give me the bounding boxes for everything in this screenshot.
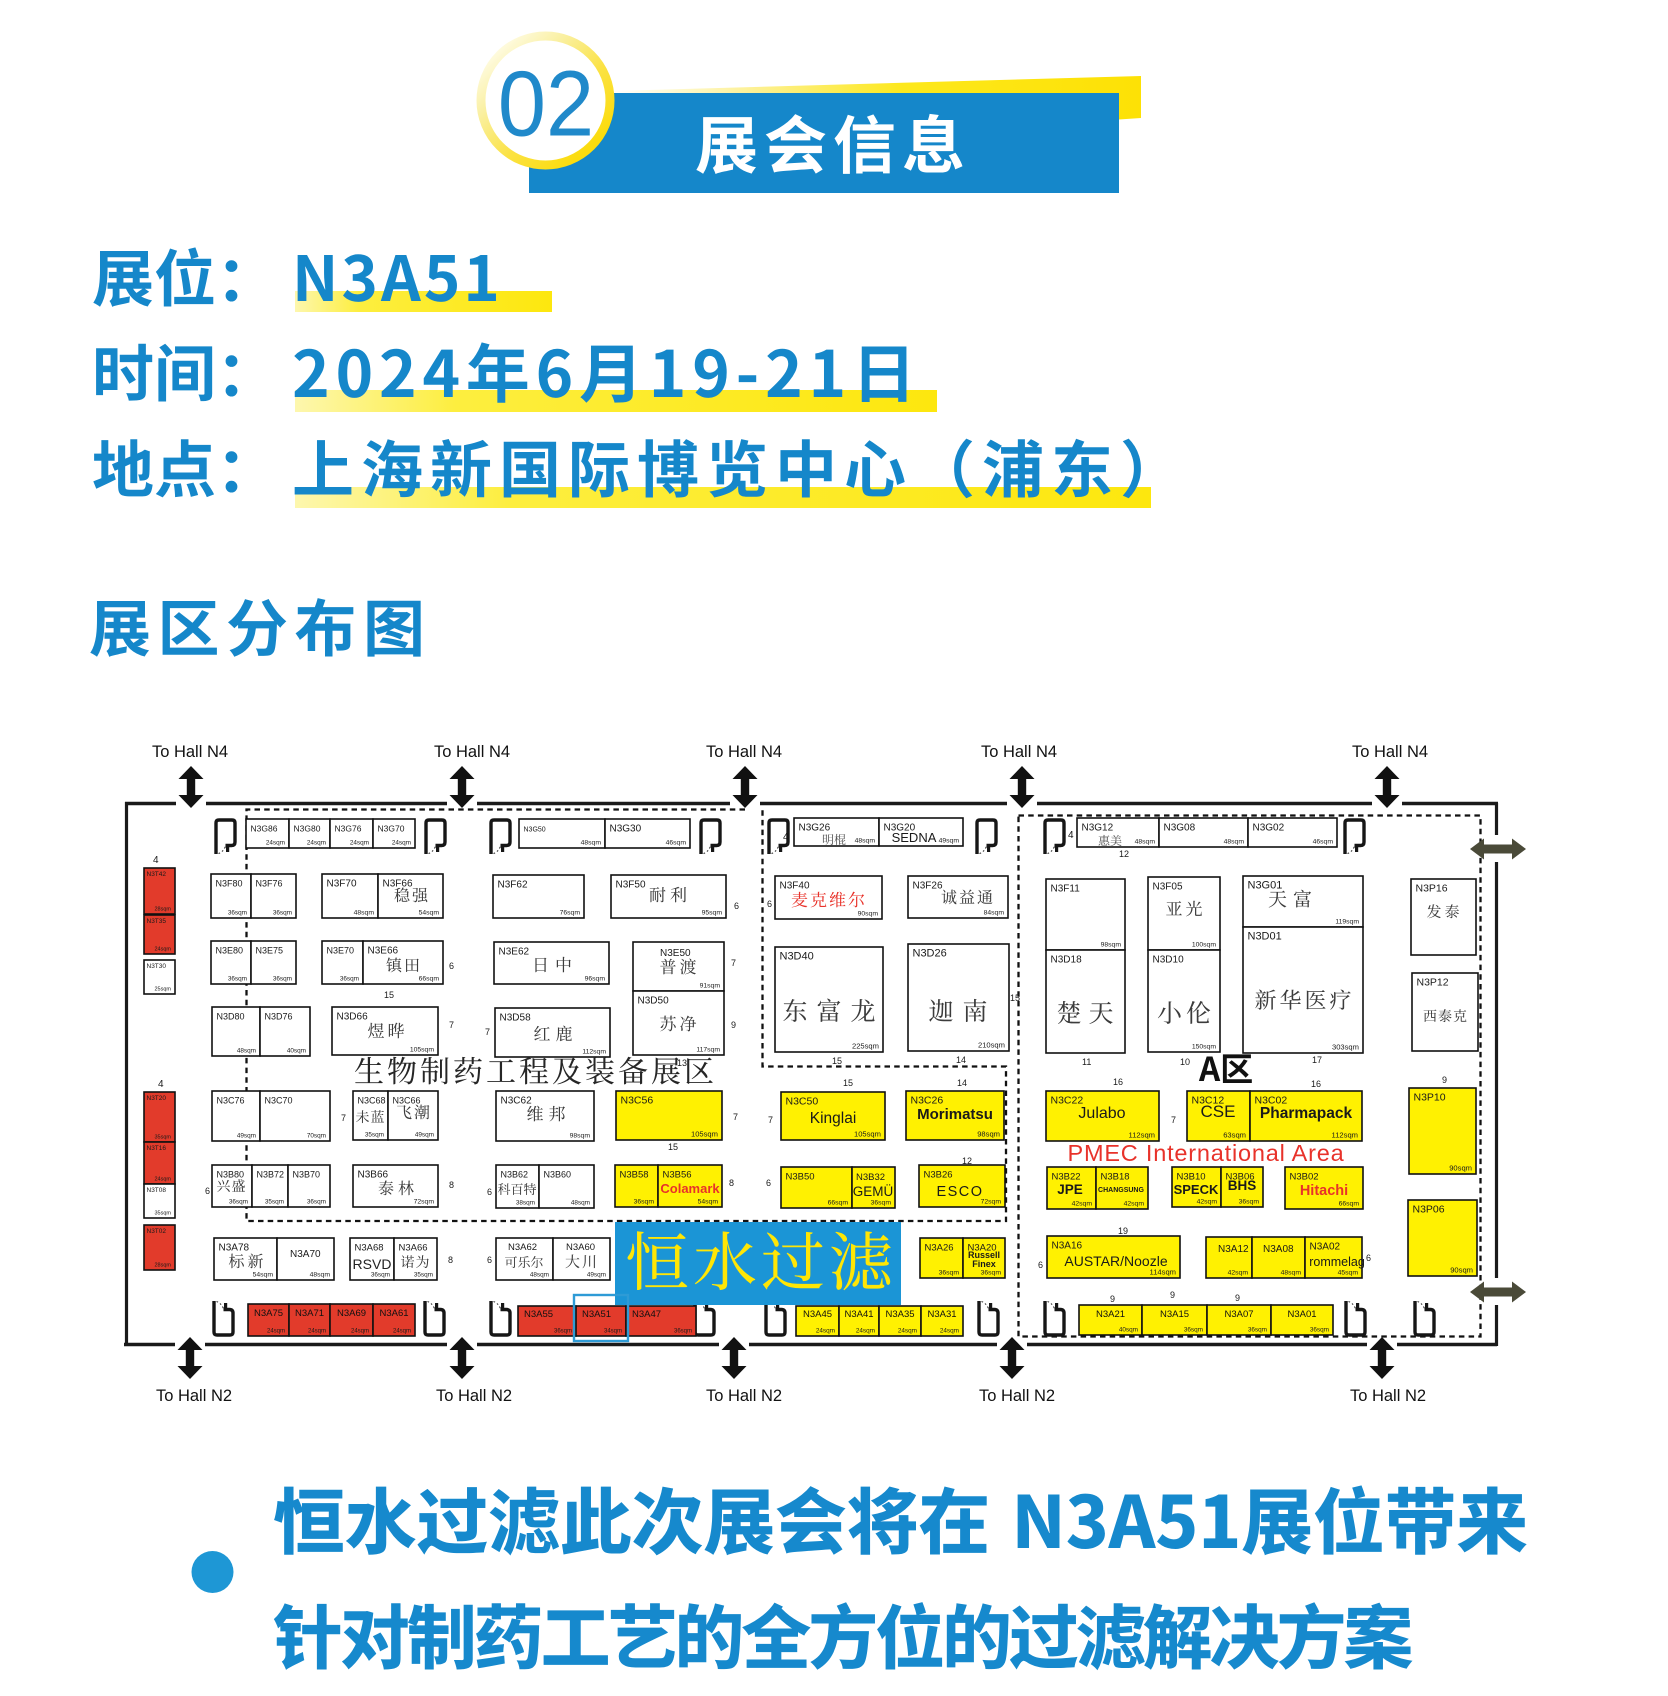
svg-text:112sqm: 112sqm [1129, 1131, 1155, 1140]
svg-text:N3E50: N3E50 [660, 948, 691, 959]
svg-text:N3B62: N3B62 [501, 1170, 529, 1180]
svg-text:N3D18: N3D18 [1051, 955, 1083, 966]
svg-text:48sqm: 48sqm [855, 838, 876, 845]
svg-text:40sqm: 40sqm [1119, 1327, 1138, 1334]
svg-text:To Hall N2: To Hall N2 [436, 1387, 512, 1405]
svg-text:N3A68: N3A68 [355, 1243, 384, 1254]
svg-text:95sqm: 95sqm [702, 910, 723, 917]
svg-text:48sqm: 48sqm [310, 1272, 331, 1279]
svg-text:N3G50: N3G50 [524, 827, 546, 834]
svg-text:To Hall N2: To Hall N2 [1350, 1387, 1426, 1405]
svg-text:N3G08: N3G08 [1164, 823, 1196, 834]
svg-text:24sqm: 24sqm [393, 1329, 411, 1335]
svg-text:N3A21: N3A21 [1096, 1309, 1125, 1320]
svg-text:N3B10: N3B10 [1177, 1172, 1206, 1183]
svg-text:36sqm: 36sqm [340, 976, 359, 983]
svg-text:105sqm: 105sqm [854, 1130, 881, 1139]
svg-text:PMEC International Area: PMEC International Area [1067, 1140, 1344, 1166]
svg-text:9: 9 [1170, 1290, 1175, 1300]
svg-text:N3B80: N3B80 [217, 1170, 245, 1180]
svg-text:N3C26: N3C26 [911, 1095, 944, 1107]
svg-text:54sqm: 54sqm [419, 910, 440, 917]
svg-text:6: 6 [449, 961, 454, 971]
svg-text:N3B22: N3B22 [1052, 1172, 1081, 1183]
svg-text:72sqm: 72sqm [981, 1199, 1002, 1206]
svg-text:N3B58: N3B58 [620, 1170, 649, 1181]
svg-text:63sqm: 63sqm [1223, 1131, 1246, 1140]
svg-text:15: 15 [1010, 993, 1020, 1003]
svg-text:N3G02: N3G02 [1253, 823, 1285, 834]
svg-text:BHS: BHS [1228, 1178, 1257, 1193]
svg-text:46sqm: 46sqm [666, 840, 687, 847]
svg-text:24sqm: 24sqm [856, 1328, 875, 1335]
svg-text:N3A02: N3A02 [1310, 1242, 1341, 1253]
svg-text:Julabo: Julabo [1078, 1105, 1125, 1122]
svg-text:7: 7 [768, 1115, 773, 1125]
svg-text:N3B02: N3B02 [1290, 1172, 1319, 1183]
svg-text:N3A78: N3A78 [219, 1243, 250, 1254]
svg-text:N3C66: N3C66 [393, 1096, 421, 1106]
svg-text:112sqm: 112sqm [582, 1049, 606, 1056]
svg-text:N3T20: N3T20 [147, 1095, 167, 1102]
svg-text:24sqm: 24sqm [154, 947, 171, 953]
svg-text:SEDNA: SEDNA [892, 830, 937, 845]
svg-text:N3D50: N3D50 [638, 996, 670, 1007]
svg-text:35sqm: 35sqm [154, 1135, 171, 1141]
svg-text:N3B32: N3B32 [856, 1172, 885, 1183]
svg-text:N3T30: N3T30 [147, 963, 167, 970]
svg-text:8: 8 [729, 1178, 734, 1188]
svg-text:38sqm: 38sqm [516, 1200, 535, 1207]
svg-text:35sqm: 35sqm [365, 1132, 384, 1139]
svg-text:36sqm: 36sqm [228, 910, 247, 917]
svg-text:CSE: CSE [1201, 1102, 1236, 1121]
svg-text:N3D26: N3D26 [913, 948, 947, 960]
svg-text:N3T35: N3T35 [147, 918, 167, 925]
svg-text:24sqm: 24sqm [307, 840, 326, 847]
svg-text:N3G76: N3G76 [335, 824, 362, 834]
svg-text:70sqm: 70sqm [307, 1133, 326, 1140]
svg-text:48sqm: 48sqm [1281, 1270, 1302, 1277]
svg-text:02: 02 [498, 53, 594, 157]
svg-text:rommelag: rommelag [1309, 1255, 1365, 1269]
svg-text:N3E75: N3E75 [256, 946, 284, 956]
svg-text:AUSTAR/Noozle: AUSTAR/Noozle [1064, 1253, 1167, 1269]
svg-text:35sqm: 35sqm [154, 1211, 171, 1217]
svg-text:N3D58: N3D58 [500, 1013, 532, 1024]
svg-text:36sqm: 36sqm [674, 1329, 692, 1335]
svg-text:N3A47: N3A47 [632, 1309, 661, 1320]
svg-text:16: 16 [1113, 1077, 1123, 1087]
svg-text:96sqm: 96sqm [585, 976, 606, 983]
svg-text:6: 6 [487, 1255, 492, 1265]
svg-text:14: 14 [956, 1055, 966, 1065]
svg-text:90sqm: 90sqm [858, 911, 879, 918]
svg-text:225sqm: 225sqm [852, 1042, 879, 1051]
svg-text:N3D66: N3D66 [337, 1012, 369, 1023]
svg-text:N3P12: N3P12 [1417, 977, 1449, 989]
svg-text:49sqm: 49sqm [587, 1272, 606, 1279]
svg-text:N3B72: N3B72 [257, 1170, 285, 1180]
svg-text:36sqm: 36sqm [1239, 1199, 1260, 1206]
svg-text:24sqm: 24sqm [816, 1328, 835, 1335]
svg-text:To Hall N2: To Hall N2 [979, 1387, 1055, 1405]
svg-text:6: 6 [1038, 1260, 1043, 1270]
svg-text:48sqm: 48sqm [237, 1048, 256, 1055]
svg-text:N3B60: N3B60 [544, 1170, 572, 1180]
svg-text:24sqm: 24sqm [308, 1329, 326, 1335]
svg-text:36sqm: 36sqm [981, 1270, 1002, 1277]
svg-text:Morimatsu: Morimatsu [917, 1106, 993, 1123]
svg-text:4: 4 [153, 855, 159, 866]
svg-text:48sqm: 48sqm [1224, 839, 1245, 846]
svg-text:N3C68: N3C68 [358, 1096, 386, 1106]
svg-text:90sqm: 90sqm [1450, 1266, 1473, 1275]
svg-text:90sqm: 90sqm [1449, 1164, 1472, 1173]
svg-text:35sqm: 35sqm [265, 1199, 284, 1206]
svg-text:N3A62: N3A62 [508, 1242, 537, 1253]
svg-text:7: 7 [731, 958, 736, 968]
svg-text:6: 6 [766, 1178, 771, 1188]
svg-text:48sqm: 48sqm [1135, 839, 1156, 846]
svg-text:Hitachi: Hitachi [1300, 1183, 1348, 1199]
svg-text:15: 15 [843, 1078, 853, 1088]
svg-text:To Hall N4: To Hall N4 [434, 743, 510, 761]
svg-text:N3A69: N3A69 [337, 1308, 366, 1319]
svg-text:48sqm: 48sqm [530, 1272, 549, 1279]
svg-text:N3A16: N3A16 [1052, 1241, 1083, 1252]
svg-text:N3A71: N3A71 [295, 1308, 324, 1319]
svg-text:N3A31: N3A31 [927, 1309, 956, 1320]
svg-text:N3F76: N3F76 [256, 879, 283, 889]
svg-text:N3D76: N3D76 [265, 1012, 293, 1022]
svg-text:49sqm: 49sqm [237, 1133, 256, 1140]
svg-text:N3B70: N3B70 [293, 1170, 321, 1180]
svg-text:72sqm: 72sqm [414, 1199, 435, 1206]
svg-text:Finex: Finex [972, 1259, 996, 1269]
svg-text:19: 19 [1118, 1226, 1128, 1236]
svg-text:N3A45: N3A45 [803, 1309, 832, 1320]
svg-text:N3A35: N3A35 [885, 1309, 914, 1320]
svg-text:46sqm: 46sqm [1313, 839, 1334, 846]
svg-text:N3P10: N3P10 [1414, 1092, 1446, 1104]
svg-text:100sqm: 100sqm [1192, 942, 1217, 949]
svg-text:36sqm: 36sqm [1184, 1327, 1203, 1334]
svg-text:84sqm: 84sqm [984, 910, 1005, 917]
svg-text:17: 17 [1312, 1055, 1322, 1065]
svg-text:6: 6 [1366, 1253, 1371, 1263]
svg-text:12: 12 [1119, 849, 1129, 859]
svg-text:24sqm: 24sqm [940, 1328, 959, 1335]
svg-text:24sqm: 24sqm [351, 1329, 369, 1335]
svg-text:9: 9 [1235, 1293, 1240, 1303]
svg-text:N3G80: N3G80 [294, 824, 321, 834]
svg-text:N3B66: N3B66 [358, 1170, 389, 1181]
svg-text:34sqm: 34sqm [604, 1329, 622, 1335]
svg-text:N3F66: N3F66 [383, 879, 413, 890]
svg-text:36sqm: 36sqm [307, 1199, 326, 1206]
svg-text:25sqm: 25sqm [154, 987, 171, 993]
svg-text:N3A08: N3A08 [1263, 1244, 1294, 1255]
svg-text:N3E62: N3E62 [499, 947, 530, 958]
svg-text:14: 14 [957, 1078, 967, 1088]
svg-text:N3G12: N3G12 [1082, 823, 1114, 834]
svg-text:To Hall N4: To Hall N4 [706, 743, 782, 761]
svg-text:303sqm: 303sqm [1332, 1043, 1359, 1052]
svg-text:15: 15 [384, 990, 394, 1000]
svg-text:54sqm: 54sqm [698, 1199, 719, 1206]
svg-text:7: 7 [485, 1027, 490, 1037]
svg-text:36sqm: 36sqm [939, 1270, 960, 1277]
svg-text:ESCO: ESCO [936, 1184, 983, 1200]
svg-text:7: 7 [449, 1020, 454, 1030]
svg-text:35sqm: 35sqm [414, 1272, 433, 1279]
svg-text:N3F62: N3F62 [498, 880, 528, 891]
svg-text:To Hall N4: To Hall N4 [981, 743, 1057, 761]
svg-text:N3A12: N3A12 [1218, 1244, 1249, 1255]
svg-text:15: 15 [668, 1142, 678, 1152]
svg-text:66sqm: 66sqm [1339, 1201, 1360, 1208]
svg-text:24sqm: 24sqm [154, 1177, 171, 1183]
svg-text:112sqm: 112sqm [1332, 1131, 1358, 1140]
svg-text:117sqm: 117sqm [696, 1047, 720, 1054]
svg-text:6: 6 [734, 901, 739, 911]
svg-text:N3F40: N3F40 [780, 881, 810, 892]
svg-text:45sqm: 45sqm [1338, 1270, 1359, 1277]
svg-text:4: 4 [158, 1079, 164, 1090]
svg-text:36sqm: 36sqm [554, 1329, 572, 1335]
svg-text:N3F50: N3F50 [616, 880, 646, 891]
svg-text:N3P06: N3P06 [1413, 1204, 1445, 1216]
svg-text:N3C56: N3C56 [621, 1095, 654, 1107]
svg-text:36sqm: 36sqm [871, 1200, 892, 1207]
svg-text:105sqm: 105sqm [691, 1130, 718, 1139]
svg-text:49sqm: 49sqm [415, 1132, 434, 1139]
svg-text:N3D01: N3D01 [1248, 931, 1282, 943]
svg-text:N3G30: N3G30 [610, 824, 642, 835]
svg-text:N3A55: N3A55 [524, 1309, 553, 1320]
svg-text:98sqm: 98sqm [1101, 942, 1122, 949]
svg-text:24sqm: 24sqm [392, 840, 411, 847]
svg-text:6: 6 [205, 1186, 210, 1196]
svg-text:N3A15: N3A15 [1160, 1309, 1189, 1320]
svg-text:8: 8 [449, 1180, 454, 1190]
svg-text:N3F05: N3F05 [1153, 882, 1183, 893]
svg-text:GEMÜ: GEMÜ [853, 1184, 894, 1199]
svg-text:8: 8 [448, 1255, 453, 1265]
svg-text:N3C70: N3C70 [265, 1096, 293, 1106]
svg-text:N3E66: N3E66 [368, 946, 399, 957]
svg-text:N3F11: N3F11 [1051, 884, 1081, 895]
svg-text:To Hall N4: To Hall N4 [1352, 743, 1428, 761]
svg-text:9: 9 [1442, 1075, 1447, 1085]
svg-text:42sqm: 42sqm [1197, 1199, 1218, 1206]
svg-text:Kinglai: Kinglai [810, 1110, 857, 1127]
svg-text:To Hall N2: To Hall N2 [156, 1387, 232, 1405]
svg-text:42sqm: 42sqm [1072, 1201, 1093, 1208]
svg-text:N3A61: N3A61 [379, 1308, 408, 1319]
svg-text:36sqm: 36sqm [273, 976, 292, 983]
svg-text:36sqm: 36sqm [1248, 1327, 1267, 1334]
svg-text:N3G26: N3G26 [799, 823, 831, 834]
svg-text:4: 4 [1068, 830, 1074, 841]
svg-text:36sqm: 36sqm [229, 1199, 248, 1206]
svg-text:36sqm: 36sqm [1310, 1327, 1329, 1334]
svg-text:N3T42: N3T42 [147, 871, 167, 878]
svg-text:Pharmapack: Pharmapack [1260, 1105, 1353, 1122]
svg-text:6: 6 [767, 899, 772, 909]
svg-text:7: 7 [1171, 1115, 1176, 1125]
svg-text:24sqm: 24sqm [898, 1328, 917, 1335]
svg-text:48sqm: 48sqm [581, 840, 602, 847]
svg-text:N3A70: N3A70 [290, 1249, 321, 1260]
svg-text:36sqm: 36sqm [634, 1199, 655, 1206]
svg-text:N3A01: N3A01 [1287, 1309, 1316, 1320]
svg-text:98sqm: 98sqm [977, 1130, 1000, 1139]
svg-text:N3A66: N3A66 [399, 1243, 428, 1254]
svg-text:40sqm: 40sqm [287, 1048, 306, 1055]
svg-text:48sqm: 48sqm [571, 1200, 590, 1207]
svg-text:N3T02: N3T02 [147, 1228, 167, 1235]
svg-text:24sqm: 24sqm [267, 1329, 285, 1335]
svg-text:119sqm: 119sqm [1335, 919, 1359, 926]
svg-text:N3B56: N3B56 [663, 1170, 692, 1181]
svg-text:To Hall N4: To Hall N4 [152, 743, 228, 761]
svg-text:N3D40: N3D40 [780, 951, 814, 963]
svg-text:N3A07: N3A07 [1224, 1309, 1253, 1320]
svg-text:N3A41: N3A41 [844, 1309, 873, 1320]
svg-text:24sqm: 24sqm [266, 840, 285, 847]
svg-text:N3G70: N3G70 [378, 824, 405, 834]
svg-text:N3F80: N3F80 [216, 879, 243, 889]
svg-text:N3A60: N3A60 [566, 1242, 595, 1253]
svg-text:Colamark: Colamark [660, 1181, 720, 1196]
svg-text:N3T16: N3T16 [147, 1145, 167, 1152]
svg-text:6: 6 [487, 1187, 492, 1197]
svg-text:N3B50: N3B50 [786, 1172, 815, 1183]
svg-text:10: 10 [1180, 1057, 1190, 1067]
svg-text:7: 7 [733, 1112, 738, 1122]
svg-text:N3C50: N3C50 [786, 1096, 819, 1108]
svg-text:36sqm: 36sqm [273, 910, 292, 917]
svg-text:N3B26: N3B26 [924, 1170, 953, 1181]
svg-text:28sqm: 28sqm [154, 1263, 171, 1269]
svg-text:210sqm: 210sqm [978, 1041, 1005, 1050]
svg-text:66sqm: 66sqm [419, 976, 440, 983]
svg-text:N3F26: N3F26 [913, 881, 943, 892]
svg-text:N3E80: N3E80 [216, 946, 244, 956]
svg-text:N3C62: N3C62 [501, 1096, 533, 1107]
svg-text:9: 9 [731, 1020, 736, 1030]
svg-text:42sqm: 42sqm [1124, 1201, 1145, 1208]
svg-text:150sqm: 150sqm [1192, 1044, 1217, 1051]
svg-text:N3G01: N3G01 [1248, 880, 1283, 892]
svg-text:36sqm: 36sqm [228, 976, 247, 983]
svg-text:7: 7 [341, 1113, 346, 1123]
svg-text:JPE: JPE [1057, 1182, 1083, 1197]
svg-text:15: 15 [832, 1056, 842, 1066]
svg-text:16: 16 [1311, 1079, 1321, 1089]
svg-text:66sqm: 66sqm [828, 1200, 849, 1207]
svg-text:13: 13 [677, 1058, 687, 1068]
svg-text:11: 11 [1082, 1057, 1091, 1067]
svg-text:N3A51: N3A51 [582, 1309, 611, 1320]
svg-text:SPECK: SPECK [1174, 1182, 1219, 1197]
svg-text:28sqm: 28sqm [154, 907, 171, 913]
svg-text:48sqm: 48sqm [354, 910, 375, 917]
svg-text:N3C76: N3C76 [217, 1096, 245, 1106]
svg-text:42sqm: 42sqm [1228, 1270, 1249, 1277]
svg-text:RSVD: RSVD [353, 1256, 392, 1272]
svg-text:To Hall N2: To Hall N2 [706, 1387, 782, 1405]
svg-text:N3E70: N3E70 [327, 946, 355, 956]
svg-text:98sqm: 98sqm [570, 1133, 591, 1140]
svg-text:49sqm: 49sqm [939, 838, 960, 845]
svg-text:91sqm: 91sqm [700, 983, 721, 990]
svg-text:N3A26: N3A26 [925, 1243, 954, 1254]
svg-text:N3G86: N3G86 [251, 824, 278, 834]
svg-text:4: 4 [783, 832, 789, 843]
svg-text:36sqm: 36sqm [371, 1272, 390, 1279]
svg-text:9: 9 [1110, 1294, 1115, 1304]
svg-text:24sqm: 24sqm [350, 840, 369, 847]
svg-text:N3B18: N3B18 [1101, 1172, 1130, 1183]
svg-text:105sqm: 105sqm [410, 1047, 435, 1054]
svg-text:N3F70: N3F70 [327, 879, 357, 890]
svg-text:N3D80: N3D80 [217, 1012, 245, 1022]
svg-text:N3T08: N3T08 [147, 1187, 167, 1194]
svg-text:CHANGSUNG: CHANGSUNG [1098, 1187, 1144, 1194]
svg-text:N3A75: N3A75 [254, 1308, 283, 1319]
svg-text:N3P16: N3P16 [1416, 883, 1448, 895]
svg-text:N3D10: N3D10 [1153, 955, 1185, 966]
svg-text:54sqm: 54sqm [253, 1272, 274, 1279]
svg-text:76sqm: 76sqm [560, 910, 581, 917]
